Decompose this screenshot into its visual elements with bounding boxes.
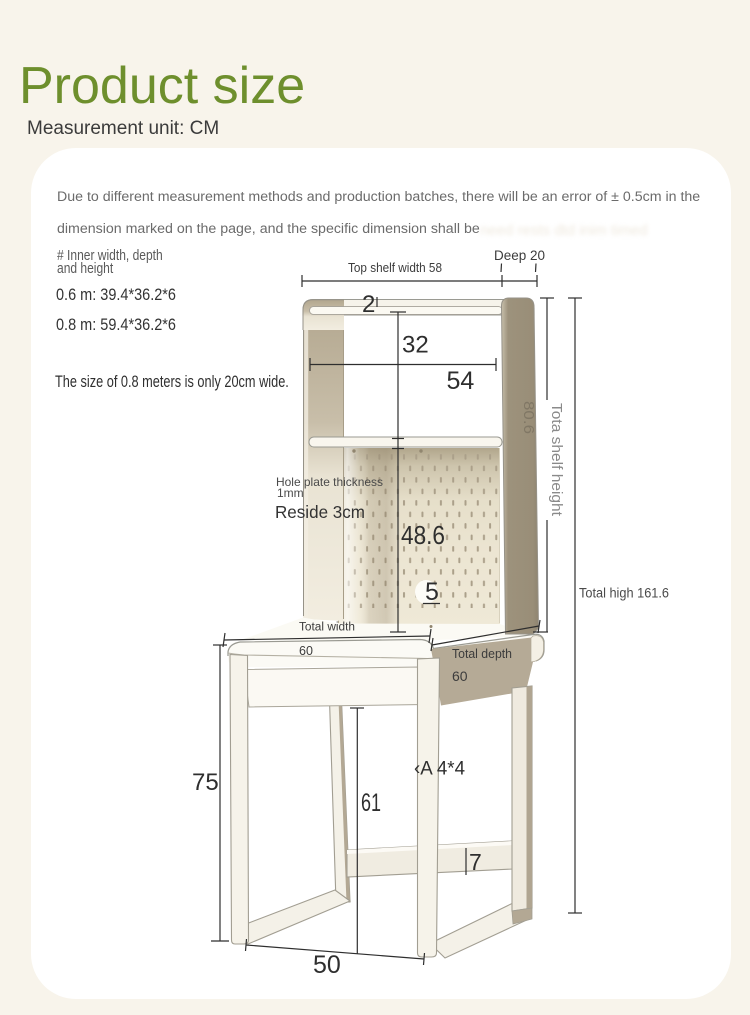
- svg-text:Top shelf width 58: Top shelf width 58: [348, 261, 442, 275]
- svg-text:2: 2: [362, 291, 375, 318]
- svg-text:7: 7: [469, 849, 482, 875]
- svg-text:50: 50: [313, 951, 341, 979]
- svg-text:Tota shelf height: Tota shelf height: [548, 403, 565, 517]
- svg-text:80.6: 80.6: [520, 401, 537, 434]
- svg-text:Total width: Total width: [299, 622, 355, 634]
- svg-text:Total depth: Total depth: [452, 647, 512, 661]
- svg-text:‹A 4*4: ‹A 4*4: [414, 759, 465, 780]
- svg-text:Total high 161.6: Total high 161.6: [579, 586, 669, 601]
- svg-text:32: 32: [402, 332, 429, 359]
- svg-text:5: 5: [425, 578, 439, 606]
- svg-text:Reside 3cm: Reside 3cm: [275, 502, 365, 522]
- svg-text:61: 61: [361, 789, 381, 817]
- svg-text:60: 60: [452, 668, 468, 684]
- svg-text:48.6: 48.6: [401, 520, 445, 550]
- svg-text:1mm: 1mm: [277, 486, 304, 500]
- svg-text:Deep 20: Deep 20: [494, 247, 545, 263]
- svg-text:60: 60: [299, 644, 313, 658]
- svg-text:75: 75: [192, 769, 219, 796]
- svg-text:54: 54: [447, 367, 475, 395]
